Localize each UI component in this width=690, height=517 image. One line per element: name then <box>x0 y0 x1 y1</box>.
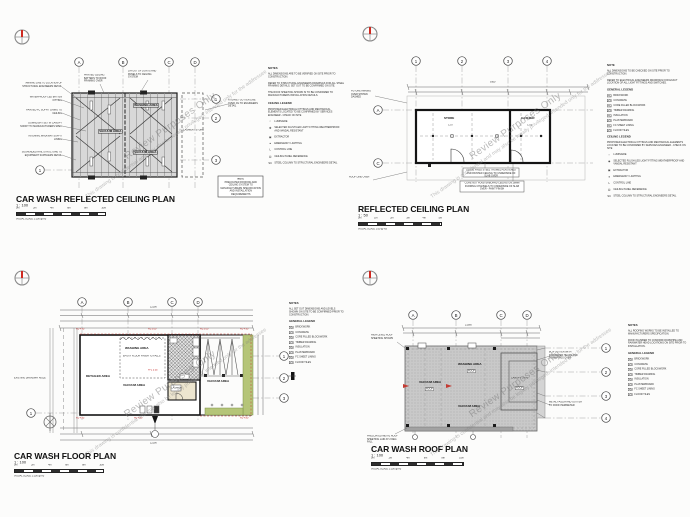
ceiling-legend-intro: PROPOSED ELECTRICAL FITTINGS AND MECHANI… <box>607 141 687 150</box>
ceiling-legend-title: CEILING LEGEND <box>268 102 344 106</box>
callout: ROOF LINE OVER <box>349 176 373 179</box>
legend-label: FC SHEET LINING <box>634 388 654 391</box>
dimension-total: 12190 <box>150 442 157 445</box>
legend-row: BRICKWORK <box>607 94 687 97</box>
hatch-swatch <box>607 109 611 112</box>
level-marker: RL 4.85 <box>76 417 84 420</box>
legend-label: BRICKWORK <box>634 358 649 361</box>
drawing-sheet: A B C D 1 2 3 1 <box>0 0 690 517</box>
roof-label-washing: WASHING AREA <box>458 363 482 366</box>
legend-row: ○LUMINAIRE <box>607 154 687 157</box>
hatch-swatch <box>289 326 293 329</box>
steel-column-icon: SC <box>268 162 272 165</box>
legend-row: SCSTEEL COLUMN TO STRUCTURAL ENGINEERS D… <box>607 195 687 198</box>
callout: METAL FASCIA AND GUTTER TO ROOF PERIMETE… <box>549 401 584 407</box>
callout-boxed: CORE NOT PLASTERBOARD CEILING ON 28MM FU… <box>462 182 522 191</box>
grid-bubble-label: C <box>376 161 379 166</box>
legend-row: SCSTEEL COLUMN TO STRUCTURAL ENGINEERS D… <box>268 162 344 165</box>
legend-row: CONCRETE <box>628 363 689 366</box>
extractor-icon: ▣ <box>607 169 611 172</box>
plan-title: CAR WASH ROOF PLAN <box>371 444 468 454</box>
emergency-light-icon: ● <box>268 142 272 145</box>
driveway-label: EXISTING DRIVEWAY AISLE <box>14 377 46 380</box>
callout: LAYOUT OF JOINTS AND PANELS TO CEILING S… <box>128 70 160 79</box>
legend-label: CONCRETE <box>613 99 626 102</box>
scale-bar-ticks: 0m2m4m6m8m10m <box>14 464 104 467</box>
legend-row: ▣EXTRACTOR <box>268 136 344 139</box>
callout: AT EAVE / GUTTER LINE OVER, RL TO ENGINE… <box>228 99 261 108</box>
cashier-room <box>168 382 196 400</box>
legend-column: NOTES ALL SET OUT DIMENSIONS AND LEVELS … <box>289 302 345 366</box>
legend-label: STEEL COLUMN TO STRUCTURAL ENGINEERS DET… <box>274 162 337 165</box>
room-label-vacuum: VACUUM AREA <box>207 380 229 383</box>
general-legend-title: GENERAL LEGEND <box>607 88 687 92</box>
note-para: ALL DIMENSIONS ARE TO BE VERIFIED ON SIT… <box>268 73 344 79</box>
hatch-swatch <box>289 341 293 344</box>
hatch-swatch <box>628 368 632 371</box>
legend-row: ▤CEILING PANEL REFERENCE <box>268 155 344 158</box>
grid-bubble-label: A <box>81 300 84 305</box>
room-label-cashier: CASHIER <box>171 387 182 390</box>
notes-title: NOTES <box>628 324 689 328</box>
level-marker: RL 4.90 <box>134 417 142 420</box>
legend-row: INSULATION <box>289 346 345 349</box>
legend-row: TIMBER FRAMING <box>628 373 689 376</box>
grid-bubble-label: C <box>499 313 502 318</box>
general-legend-title: GENERAL LEGEND <box>289 320 345 324</box>
room-label-store: STORE <box>444 117 454 120</box>
panel-carwash-roof-plan: A B C D 1 2 3 4 <box>345 258 690 517</box>
legend-label: PLASTERBOARD <box>295 351 314 354</box>
carwash-building <box>72 91 177 180</box>
entry-arrow <box>152 416 159 438</box>
legend-row: BRICKWORK <box>289 326 345 329</box>
grid-bubble-label: A <box>78 60 81 65</box>
legend-row: FLOOR TILES <box>628 393 689 396</box>
callout: WATERPROOF LED BATTEN FITTING <box>20 96 62 102</box>
legend-label: LUMINAIRE <box>274 120 287 123</box>
grid-bubble-label: A <box>377 108 380 113</box>
visual-scale-note: VISUAL SCALE 1:100 @ A3 <box>371 468 401 471</box>
legend-label: CEILING PANEL REFERENCE <box>274 155 307 158</box>
scale-bar <box>371 462 464 466</box>
scale-bar <box>14 469 104 473</box>
legend-label: EMERGENCY LIGHTING <box>274 142 301 145</box>
room-label-cashier: CASHIER <box>521 117 535 120</box>
legend-column: NOTES ALL DIMENSIONS ARE TO BE VERIFIED … <box>268 67 344 168</box>
downlight-icon: ◉ <box>607 160 611 163</box>
legend-row: ▣EXTRACTOR <box>607 169 687 172</box>
note-para: ROOF PLUMBER TO CONFIRM DOWNPIPE AND RAI… <box>628 339 689 348</box>
notes-title: NOTES <box>289 302 345 306</box>
ceiling-legend-title: CEILING LEGEND <box>607 135 687 139</box>
detailed-area-label: DETAILED AREA <box>86 375 110 378</box>
roof-tag: ROOF <box>515 387 524 390</box>
legend-column: NOTES ALL ROOFING WORKS TO BE INSTALLED … <box>628 324 689 398</box>
legend-row: INSULATION <box>628 378 689 381</box>
legend-label: BRICKWORK <box>613 94 628 97</box>
visual-scale-note: VISUAL SCALE 1:100 @ A3 <box>16 218 46 221</box>
room-label-washing: WASHING AREA <box>133 104 159 107</box>
plant-room-hatched <box>168 335 200 380</box>
luminaire-icon: ○ <box>268 120 272 123</box>
scale-bar-ticks: 0m2m4m6m8m10m <box>16 207 106 210</box>
control-line-icon: L <box>607 182 611 185</box>
legend-row: ●EMERGENCY LIGHTING <box>268 142 344 145</box>
legend-row: ○LUMINAIRE <box>268 120 344 123</box>
hatch-swatch <box>607 124 611 127</box>
callout: PAINTED FC SOFFIT LINING TO CEILING <box>20 109 62 115</box>
callout: PRECOATED METAL ROOF SHEETING LAID AT 2 … <box>367 435 401 444</box>
north-symbol <box>15 271 29 285</box>
landscape-strips <box>205 335 253 415</box>
dimension-total: 12190 <box>150 306 157 309</box>
hatch-swatch <box>628 373 632 376</box>
legend-label: CORE FILLED BLOCKWORK <box>613 104 645 107</box>
scale-bar <box>358 222 442 226</box>
legend-label: TIMBER FRAMING <box>613 109 634 112</box>
callout: INTERNAL WALKWAY SOFFIT LINING <box>20 135 62 141</box>
legend-row: LCONTROL LINE <box>607 182 687 185</box>
panel-reflected-ceiling-plan: 1 2 3 4 A C <box>345 0 690 258</box>
section-marker <box>288 372 296 380</box>
legend-label: TIMBER FRAMING <box>295 341 316 344</box>
note-para: THE ROOF SHEETING SHOWN IS TO BE CONFIRM… <box>268 91 344 97</box>
north-symbol <box>15 30 29 44</box>
legend-row: FC SHEET LINING <box>289 356 345 359</box>
legend-row: FLOOR TILES <box>607 129 687 132</box>
hatch-swatch <box>289 346 293 349</box>
legend-label: FC SHEET LINING <box>295 356 315 359</box>
level-marker: FFL 5.05 <box>148 369 158 372</box>
legend-row: LCONTROL LINE <box>268 149 344 152</box>
legend-label: CONTROL LINE <box>613 182 631 185</box>
emergency-light-icon: ● <box>607 176 611 179</box>
roof-label-canopy: CANOPY (TYP) <box>511 377 529 380</box>
legend-row: FLOOR TILES <box>289 361 345 364</box>
level-marker: RL 5.00 <box>200 328 208 331</box>
callout-boxed: CLOSE FIXED STEEL TROWEL PLASTERED AND P… <box>465 169 517 178</box>
legend-row: CORE FILLED BLOCKWORK <box>607 104 687 107</box>
room-sublabel: EPOXY FLOOR FINISH TO FALLS <box>123 355 167 358</box>
callout: FUTURE AWNING OVER SHOWN DASHED <box>351 90 376 99</box>
grid-bubble-label: D <box>196 300 199 305</box>
steel-column-icon: SC <box>607 195 611 198</box>
grid-bubble-label: D <box>193 60 196 65</box>
note-title: NOTE <box>607 64 687 68</box>
room-label-vacuum: VACUUM AREA <box>98 130 123 133</box>
general-legend-title: GENERAL LEGEND <box>628 352 689 356</box>
legend-row: PLASTERBOARD <box>607 119 687 122</box>
legend-label: CORE FILLED BLOCKWORK <box>295 336 327 339</box>
legend-row: ◉SELECTED FLUSH LED LIGHT FITTING WEATHE… <box>607 160 687 166</box>
note-para: REFER TO STRUCTURAL ENGINEERS DRAWINGS F… <box>268 82 344 88</box>
legend-label: CONCRETE <box>634 363 647 366</box>
legend-label: TIMBER FRAMING <box>634 373 655 376</box>
legend-row: TIMBER FRAMING <box>289 341 345 344</box>
hatch-swatch <box>628 378 632 381</box>
legend-label: EXTRACTOR <box>274 136 289 139</box>
legend-row: CORE FILLED BLOCKWORK <box>289 336 345 339</box>
legend-row: CONCRETE <box>289 331 345 334</box>
legend-label: FLOOR TILES <box>634 393 650 396</box>
note-box: NOTE PRECOATED ROOFING AND CEILING SYSTE… <box>220 178 262 196</box>
legend-row: FC SHEET LINING <box>607 124 687 127</box>
level-marker: RL 4.80 <box>240 417 248 420</box>
note-para: ALL SET OUT DIMENSIONS AND LEVELS SHOWN … <box>289 308 345 317</box>
room-number: C.03 <box>527 124 532 127</box>
ceiling-panel-icon: ▤ <box>607 189 611 192</box>
hatch-swatch <box>607 114 611 117</box>
scale-bar-ticks: 0m1m2m3m4m5m <box>358 217 442 220</box>
legend-row: ◉SELECTED FLUSH LED LIGHT FITTING WEATHE… <box>268 127 344 133</box>
ceiling-legend-intro: PROPOSED ELECTRICAL FITTINGS AND MECHANI… <box>268 108 344 117</box>
extractor-icon: ▣ <box>268 136 272 139</box>
room-number: C.07 <box>448 124 453 127</box>
legend-column: NOTE ALL DIMENSIONS TO BE CHECKED ON SIT… <box>607 64 687 201</box>
callout: DOWNLIGHT SET IN CANOPY SOFFIT TO MANUFA… <box>20 122 62 128</box>
visual-scale-note: VISUAL SCALE 1:50 @ A3 <box>358 228 387 231</box>
hatch-swatch <box>628 363 632 366</box>
grid-bubble-label: C <box>170 300 173 305</box>
legend-label: STEEL COLUMN TO STRUCTURAL ENGINEERS DET… <box>613 195 676 198</box>
survey-marker <box>44 413 56 431</box>
legend-label: CONTROL LINE <box>274 149 292 152</box>
visual-scale-note: VISUAL SCALE 1:100 @ A3 <box>14 475 44 478</box>
legend-row: CONCRETE <box>607 99 687 102</box>
scale-bar <box>16 212 106 216</box>
canopy-trusses <box>200 338 240 376</box>
plan-title: CAR WASH REFLECTED CEILING PLAN <box>16 194 175 204</box>
grid-bubble-label: B <box>127 300 130 305</box>
grid-bubble-label: B <box>122 60 125 65</box>
level-marker: RL 4.90 <box>240 328 248 331</box>
hatch-swatch <box>628 388 632 391</box>
legend-label: SELECTED FLUSH LED LIGHT FITTING WEATHER… <box>274 127 344 133</box>
hatch-swatch <box>607 129 611 132</box>
hatch-swatch <box>628 383 632 386</box>
room-label-cashier-store: CASHIER / STORE <box>183 129 204 132</box>
legend-row: ●EMERGENCY LIGHTING <box>607 176 687 179</box>
plan-title: CAR WASH FLOOR PLAN <box>14 451 116 461</box>
hatch-swatch <box>628 393 632 396</box>
legend-label: INSULATION <box>613 114 627 117</box>
legend-label: FLOOR TILES <box>295 361 311 364</box>
downlight-icon: ◉ <box>268 127 272 130</box>
legend-label: INSULATION <box>295 346 309 349</box>
legend-label: CORE FILLED BLOCKWORK <box>634 368 666 371</box>
callout: PAINTED CEILING BATTENS TO ROOF FRAMING … <box>84 74 112 83</box>
ceiling-panel-icon: ▤ <box>268 155 272 158</box>
legend-row: BRICKWORK <box>628 358 689 361</box>
room-label-vacuum: VACUUM AREA <box>133 151 158 154</box>
note-para: ALL DIMENSIONS TO BE CHECKED ON SITE PRI… <box>607 70 687 76</box>
scale-bar-ticks: 0m2m4m6m8m10m <box>371 457 464 460</box>
notes-title: NOTES <box>268 67 344 71</box>
legend-label: SELECTED FLUSH LED LIGHT FITTING WEATHER… <box>613 160 687 166</box>
legend-row: TIMBER FRAMING <box>607 109 687 112</box>
callout: SUSPENDED RAIL STRUCTURE TO EQUIPMENT SU… <box>20 151 62 157</box>
hatch-swatch <box>289 336 293 339</box>
note-para: REFER TO ELECTRICAL ENGINEERS DRAWINGS F… <box>607 79 687 85</box>
legend-row: INSULATION <box>607 114 687 117</box>
legend-label: BRICKWORK <box>295 326 310 329</box>
roof-tag: ROOF <box>467 370 476 373</box>
room-label-vacuum: VACUUM AREA <box>123 384 145 387</box>
note-box-body: PRECOATED ROOFING AND CEILING SYSTEM TO … <box>221 181 261 195</box>
legend-row: PLASTERBOARD <box>289 351 345 354</box>
level-marker: RL 4.95 <box>76 328 84 331</box>
legend-label: PLASTERBOARD <box>634 383 653 386</box>
grid-bubble-label: A <box>412 313 415 318</box>
roof-label-vacuum: VACUUM AREA <box>419 381 441 384</box>
hatch-swatch <box>289 361 293 364</box>
dimension-lines <box>407 84 589 95</box>
hatch-swatch <box>628 358 632 361</box>
luminaire-icon: ○ <box>607 154 611 157</box>
legend-label: CONCRETE <box>295 331 308 334</box>
note-para: ALL ROOFING WORKS TO BE INSTALLED TO MAN… <box>628 330 689 336</box>
grid-bubble-label: B <box>455 313 458 318</box>
hatch-swatch <box>289 356 293 359</box>
room-label-washing: WASHING AREA <box>125 347 149 350</box>
level-marker: RL 5.00 <box>148 328 156 331</box>
legend-label: LUMINAIRE <box>613 154 626 157</box>
legend-row: CORE FILLED BLOCKWORK <box>628 368 689 371</box>
grid-bubble-label: D <box>525 313 528 318</box>
grid-bubble-label: C <box>167 60 170 65</box>
hatch-swatch <box>607 104 611 107</box>
callout: BOX GUTTER WITH RAINWATER HEADS AND DOWN… <box>549 351 584 360</box>
legend-label: PLASTERBOARD <box>613 119 632 122</box>
roof-tag: ROOF <box>425 388 434 391</box>
north-symbol <box>363 271 377 285</box>
callout: AWNING LINE TO LOCATION OF STRUCTURAL EN… <box>20 82 62 88</box>
hatch-swatch <box>607 94 611 97</box>
legend-label: FC SHEET LINING <box>613 124 633 127</box>
legend-row: PLASTERBOARD <box>628 383 689 386</box>
panel-carwash-reflected-ceiling-plan: A B C D 1 2 3 1 <box>0 0 345 258</box>
dimension-total: 21360 <box>465 324 472 327</box>
roof-label-vacuum: VACUUM AREA <box>458 405 480 408</box>
legend-row: ▤CEILING PANEL REFERENCE <box>607 189 687 192</box>
hatch-swatch <box>289 351 293 354</box>
hatch-swatch <box>289 331 293 334</box>
callout: HIGH LEVEL ROOF SHEETING SHOWN <box>371 334 397 340</box>
legend-label: INSULATION <box>634 378 648 381</box>
legend-label: FLOOR TILES <box>613 129 629 132</box>
hatch-swatch <box>607 119 611 122</box>
legend-row: FC SHEET LINING <box>628 388 689 391</box>
dimension-total: 9160 <box>490 81 495 84</box>
control-line-icon: L <box>268 149 272 152</box>
north-symbol <box>363 27 377 41</box>
legend-label: CEILING PANEL REFERENCE <box>613 189 646 192</box>
hatch-swatch <box>607 99 611 102</box>
plan-title: REFLECTED CEILING PLAN <box>358 204 469 214</box>
legend-label: EMERGENCY LIGHTING <box>613 176 640 179</box>
legend-label: EXTRACTOR <box>613 169 628 172</box>
cashier-store-dashed-outline <box>182 93 203 177</box>
panel-carwash-floor-plan: A B C D 1 2 3 1 <box>0 258 345 517</box>
